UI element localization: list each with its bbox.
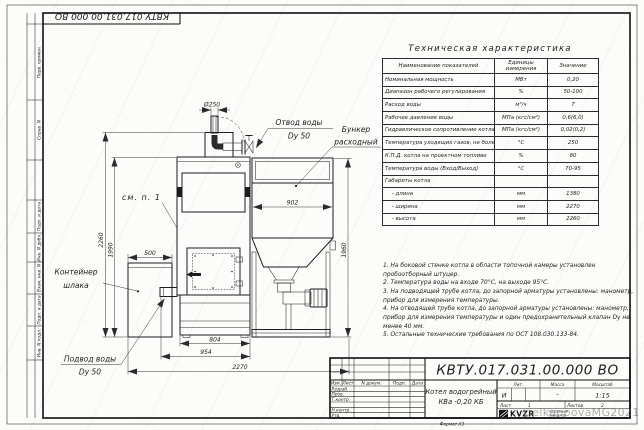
titleblock-mass-value: -	[556, 391, 559, 399]
spec-cell: 250	[548, 137, 599, 150]
dim-boiler-width: 954	[200, 349, 212, 356]
spec-row: Номинальная мощностьМВт0,20	[383, 74, 599, 87]
spec-cell: м³/ч	[495, 99, 548, 112]
dim-chimney-dia: Ø250	[203, 102, 220, 109]
titleblock-product-name: Котел водогрейный	[425, 388, 497, 396]
dim-boiler-height: 1990	[107, 242, 114, 257]
spec-cell: 2270	[548, 200, 599, 213]
spec-cell: мм	[495, 200, 548, 213]
spec-cell: МПа (кгс/см²)	[495, 112, 548, 125]
titleblock-mass-label: Масса	[551, 382, 565, 388]
drawing-sheet: КВТУ.017.031.00.000 ВО Перв. примен. Спр…	[0, 0, 644, 430]
stamp-inv-dubl: Инв. N дубл.	[37, 233, 43, 261]
label-bunker-2: расходный	[333, 138, 378, 147]
stamp-perv-primen: Перв. примен.	[37, 46, 43, 78]
spec-cell: мм	[495, 213, 548, 226]
spec-cell	[548, 175, 599, 188]
spec-cell: К.П.Д. котла на проектном топливе	[383, 150, 495, 163]
stamp-podp-data-1: Подп. и дата	[37, 202, 43, 232]
spec-cell: 50-100	[548, 86, 599, 99]
titleblock-col-doc: N докум.	[362, 381, 382, 387]
dim-base-width: 804	[209, 337, 221, 344]
label-slag-container: Контейнер	[55, 268, 98, 277]
spec-table-section: Техническая характеристика Наименование …	[382, 44, 598, 226]
titleblock-doc-number: КВТУ.017.031.00.000 ВО	[436, 363, 618, 379]
spec-cell: 70-95	[548, 162, 599, 175]
spec-row: - высотамм2260	[383, 213, 599, 226]
spec-cell: Рабочее давление воды	[383, 112, 495, 125]
spec-cell: 0,20	[548, 74, 599, 87]
stamp-sprav-n: Справ. N	[37, 119, 43, 139]
spec-row: Габариты котла	[383, 175, 599, 188]
spec-table-title: Техническая характеристика	[382, 44, 598, 54]
titleblock-sheet-label: Лист	[499, 403, 511, 409]
dim-bunker-width: 902	[287, 200, 299, 207]
spec-cell: 0,02(0,2)	[548, 124, 599, 137]
top-doc-number: КВТУ.017.031.00.000 ВО	[55, 11, 169, 21]
note-item: 4. На отводящей трубе котла, до запорной…	[383, 305, 635, 331]
spec-cell: 7	[548, 99, 599, 112]
spec-cell: мм	[495, 188, 548, 201]
label-water-inlet-dn: Dy 50	[79, 368, 101, 377]
spec-cell	[495, 175, 548, 188]
dim-container-width: 500	[144, 250, 156, 257]
titleblock-lit-label: Лит.	[513, 382, 524, 388]
label-slag-container-2: шлака	[63, 281, 89, 290]
titleblock-col-list: Лист	[342, 381, 354, 387]
spec-table: Наименование показателей Единицы измерен…	[382, 58, 599, 226]
label-bunker: Бункер	[342, 125, 371, 134]
spec-cell: МВт	[495, 74, 548, 87]
titleblock-role-prov: Пров.	[332, 392, 345, 398]
titleblock-product-model: КВа -0,20 КБ	[438, 398, 483, 406]
spec-cell: 0,6(6,0)	[548, 112, 599, 125]
note-item: 1. На боковой стенке котла в области топ…	[383, 262, 635, 279]
spec-cell: - длина	[383, 188, 495, 201]
titleblock-scale-label: Масштаб	[592, 382, 613, 388]
spec-cell: Температура воды (Вход/Выход)	[383, 162, 495, 175]
spec-cell: Расход воды	[383, 99, 495, 112]
label-see-note-1: см. п. 1	[122, 193, 161, 202]
notes-list: 1. На боковой стенке котла в области топ…	[383, 262, 635, 340]
spec-row: Температура воды (Вход/Выход)°С70-95	[383, 162, 599, 175]
spec-col-units: Единицы измерения	[495, 59, 548, 74]
dim-total-width: 2270	[232, 364, 247, 371]
spec-row: Диапазон рабочего регулирования%50-100	[383, 86, 599, 99]
spec-cell: %	[495, 86, 548, 99]
titleblock-col-podp: Подп.	[393, 381, 406, 387]
spec-row: Расход водым³/ч7	[383, 99, 599, 112]
spec-row: К.П.Д. котла на проектном топливе%80	[383, 150, 599, 163]
titleblock-lit-value: И	[502, 392, 507, 400]
spec-cell: 80	[548, 150, 599, 163]
door-bolts	[194, 254, 233, 289]
titleblock-scale-value: 1:15	[595, 392, 610, 400]
note-item: 2. Температура воды на входе 70°С, на вы…	[383, 279, 635, 288]
spec-col-value: Значение	[548, 59, 599, 74]
spec-row: Рабочее давление водыМПа (кгс/см²)0,6(6,…	[383, 112, 599, 125]
label-water-outlet: Отвод воды	[276, 118, 323, 127]
spec-cell: - высота	[383, 213, 495, 226]
titleblock-role-razrab: Разраб.	[332, 386, 349, 392]
spec-cell: Номинальная мощность	[383, 74, 495, 87]
titleblock-col-data: Дата	[411, 381, 423, 387]
spec-row: Температура уходящих газов, не более°С25…	[383, 137, 599, 150]
titleblock-role-tkontr: Т.контр.	[332, 397, 351, 403]
dim-bunker-height: 1960	[341, 242, 348, 257]
spec-cell: Гидравлическое сопротивление котла	[383, 124, 495, 137]
border-stamp-labels: КВТУ.017.031.00.000 ВО Перв. примен. Спр…	[37, 11, 170, 358]
note-item: 5. Остальные технические требования по О…	[383, 331, 635, 340]
dim-total-height: 2260	[98, 232, 105, 247]
format-note: Формат А3	[440, 422, 465, 428]
seller-watermark: ©elkappovaMG2021	[521, 406, 640, 419]
spec-cell: - ширина	[383, 200, 495, 213]
label-water-outlet-dn: Dy 50	[288, 132, 310, 141]
spec-cell: °С	[495, 162, 548, 175]
spec-cell: Температура уходящих газов, не более	[383, 137, 495, 150]
spec-cell: 2260	[548, 213, 599, 226]
spec-cell: 1380	[548, 188, 599, 201]
spec-row: Гидравлическое сопротивление котлаМПа (к…	[383, 124, 599, 137]
titleblock-role-utv: Утв.	[332, 413, 341, 419]
kvzr-logo-icon	[499, 410, 508, 417]
spec-cell: %	[495, 150, 548, 163]
stamp-podp-data-2: Подп. и дата	[37, 295, 43, 325]
boiler-assembly-drawing	[128, 116, 336, 338]
stamp-vzam-inv: Взам. инв. N	[37, 263, 43, 292]
spec-cell: МПа (кгс/см²)	[495, 124, 548, 137]
spec-cell: Габариты котла	[383, 175, 495, 188]
stamp-inv-podl: Инв. N подл.	[37, 329, 43, 357]
spec-cell: Диапазон рабочего регулирования	[383, 86, 495, 99]
titleblock-col-izm: Изм.	[331, 381, 341, 387]
spec-row: - длинамм1380	[383, 188, 599, 201]
spec-row: - ширинамм2270	[383, 200, 599, 213]
spec-header-row: Наименование показателей Единицы измерен…	[383, 59, 599, 74]
titleblock-role-nkontr: Н.контр.	[332, 408, 351, 414]
note-item: 3. На подводящей трубе котла, до запорно…	[383, 288, 635, 305]
spec-col-name: Наименование показателей	[383, 59, 495, 74]
label-water-inlet: Подвод воды	[64, 355, 116, 364]
spec-table-body: Номинальная мощностьМВт0,20Диапазон рабо…	[383, 74, 599, 226]
spec-cell: °С	[495, 137, 548, 150]
